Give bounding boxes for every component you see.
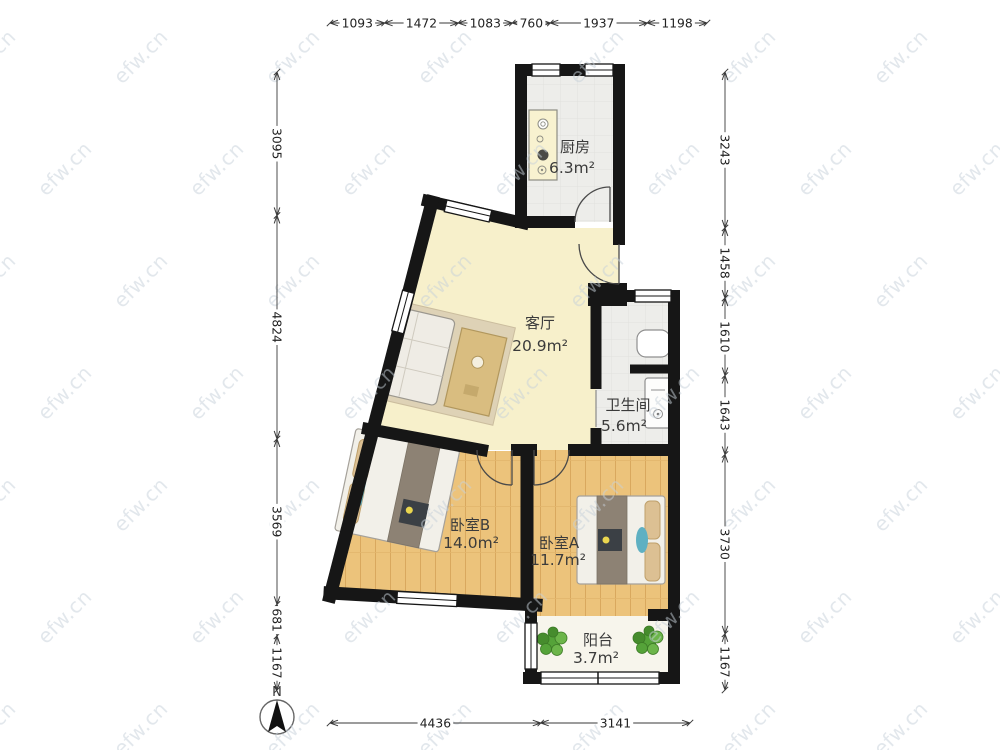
- dimension-value: 1610: [718, 319, 733, 355]
- watermark-text: efw.cn: [945, 137, 1000, 201]
- floor-plan-page: 厨房 6.3m² 客厅 20.9m² 卫生间 5.6m² 卧室B 14.0m² …: [0, 0, 1000, 750]
- watermark-text: efw.cn: [0, 25, 21, 89]
- watermark-text: efw.cn: [869, 697, 933, 750]
- svg-text:1937: 1937: [583, 16, 614, 30]
- svg-text:3095: 3095: [270, 128, 284, 159]
- balcony-label: 阳台: [583, 631, 613, 649]
- kitchen-label: 厨房: [560, 138, 590, 156]
- pillow: [645, 501, 660, 539]
- dimension-value: 1937: [581, 16, 617, 31]
- svg-text:681: 681: [270, 608, 284, 631]
- dimensions-left: 3095482435696811167: [270, 69, 285, 693]
- svg-text:3730: 3730: [718, 529, 732, 560]
- watermark-text: efw.cn: [109, 249, 173, 313]
- dimension-value: 4436: [418, 716, 454, 731]
- svg-text:3243: 3243: [718, 134, 732, 165]
- window: [541, 672, 659, 684]
- svg-text:1643: 1643: [718, 399, 732, 430]
- watermark-text: efw.cn: [185, 585, 249, 649]
- floor-plan-canvas: 厨房 6.3m² 客厅 20.9m² 卫生间 5.6m² 卧室B 14.0m² …: [0, 0, 1000, 750]
- window: [635, 290, 671, 302]
- svg-text:760: 760: [520, 16, 543, 30]
- dimension-value: 1093: [340, 16, 376, 31]
- watermark-text: efw.cn: [717, 25, 781, 89]
- svg-text:1472: 1472: [406, 16, 437, 30]
- dimension-value: 3243: [718, 132, 733, 168]
- watermark-text: efw.cn: [185, 137, 249, 201]
- bedroom-b-label: 卧室B: [450, 516, 490, 534]
- window: [532, 64, 560, 76]
- watermark-text: efw.cn: [109, 697, 173, 750]
- dimension-value: 760: [517, 16, 545, 31]
- dimension-value: 1472: [404, 16, 440, 31]
- watermark-text: efw.cn: [33, 585, 97, 649]
- watermark-text: efw.cn: [413, 25, 477, 89]
- dimension-value: 3730: [718, 526, 733, 562]
- dimension-value: 1167: [270, 645, 285, 681]
- dimension-value: 681: [270, 606, 285, 634]
- watermark-text: efw.cn: [945, 361, 1000, 425]
- dimension-value: 3095: [270, 126, 285, 162]
- bedroom-b-area: 14.0m²: [443, 534, 499, 552]
- watermark-text: efw.cn: [717, 697, 781, 750]
- watermark-text: efw.cn: [793, 137, 857, 201]
- dimension-value: 4824: [270, 309, 285, 345]
- bed-pad: [598, 529, 622, 551]
- watermark-text: efw.cn: [109, 25, 173, 89]
- window: [397, 591, 458, 606]
- dimension-value: 1643: [718, 397, 733, 433]
- dimension-value: 1458: [718, 245, 733, 281]
- svg-text:1610: 1610: [718, 321, 732, 352]
- svg-text:3569: 3569: [270, 506, 284, 537]
- living-label: 客厅: [525, 314, 555, 332]
- dimension-value: 3569: [270, 504, 285, 540]
- bedroom-a-label: 卧室A: [539, 534, 580, 552]
- svg-text:1167: 1167: [718, 646, 732, 677]
- watermark-text: efw.cn: [0, 249, 21, 313]
- watermark-text: efw.cn: [0, 473, 21, 537]
- watermark-text: efw.cn: [869, 25, 933, 89]
- kitchen-area: 6.3m²: [549, 159, 595, 177]
- svg-text:1198: 1198: [661, 16, 692, 30]
- dimensions-bottom: 44363141: [327, 716, 693, 731]
- watermark-text: efw.cn: [0, 697, 21, 750]
- dimensions-right: 324314581610164337301167: [718, 69, 733, 693]
- svg-text:1083: 1083: [470, 16, 501, 30]
- watermark-text: efw.cn: [33, 137, 97, 201]
- watermark-text: efw.cn: [793, 361, 857, 425]
- sink-icon: [538, 119, 548, 129]
- watermark-text: efw.cn: [109, 473, 173, 537]
- watermark-text: efw.cn: [33, 361, 97, 425]
- watermark-text: efw.cn: [261, 249, 325, 313]
- watermark-text: efw.cn: [793, 585, 857, 649]
- bathroom-area: 5.6m²: [601, 417, 647, 435]
- watermark-text: efw.cn: [261, 25, 325, 89]
- bedroom-a-area: 11.7m²: [530, 551, 586, 569]
- watermark-text: efw.cn: [945, 585, 1000, 649]
- dimension-value: 1167: [718, 644, 733, 680]
- svg-text:3141: 3141: [600, 716, 631, 730]
- dimension-value: 1083: [467, 16, 503, 31]
- window: [525, 623, 537, 669]
- balcony-area: 3.7m²: [573, 649, 619, 667]
- dimension-value: 1198: [659, 16, 695, 31]
- watermark-text: efw.cn: [185, 361, 249, 425]
- svg-text:1458: 1458: [718, 247, 732, 278]
- watermark-text: efw.cn: [869, 249, 933, 313]
- svg-text:1093: 1093: [342, 16, 373, 30]
- bathroom-sink: [637, 330, 670, 357]
- watermark-text: efw.cn: [337, 137, 401, 201]
- svg-text:1167: 1167: [270, 647, 284, 678]
- dimensions-top: 10931472108376019371198: [327, 16, 710, 31]
- watermark-text: efw.cn: [869, 473, 933, 537]
- dimension-value: 3141: [598, 716, 634, 731]
- pillow: [645, 543, 660, 581]
- watermark-text: efw.cn: [641, 137, 705, 201]
- svg-text:4824: 4824: [270, 312, 284, 343]
- svg-text:4436: 4436: [420, 716, 451, 730]
- living-area: 20.9m²: [512, 337, 568, 355]
